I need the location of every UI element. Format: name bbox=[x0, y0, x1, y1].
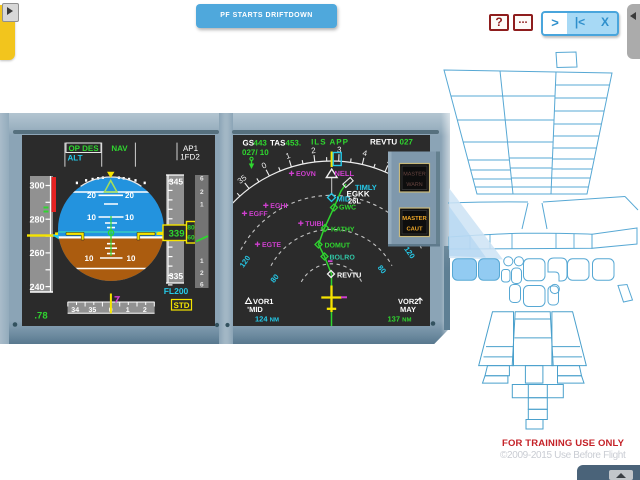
svg-text:2: 2 bbox=[143, 307, 147, 314]
svg-text:2: 2 bbox=[200, 189, 204, 196]
svg-text:260: 260 bbox=[29, 248, 44, 258]
svg-text:240: 240 bbox=[29, 282, 44, 292]
svg-text:KATHY: KATHY bbox=[331, 227, 355, 234]
svg-text:10: 10 bbox=[127, 254, 136, 263]
svg-text:80: 80 bbox=[376, 263, 388, 275]
svg-text:1: 1 bbox=[285, 151, 292, 161]
svg-text:2: 2 bbox=[200, 270, 204, 277]
svg-text:FL200: FL200 bbox=[164, 286, 189, 296]
svg-text:MAY: MAY bbox=[400, 305, 416, 314]
svg-text:34: 34 bbox=[71, 307, 79, 314]
svg-text:280: 280 bbox=[29, 214, 44, 224]
svg-text:26L: 26L bbox=[348, 197, 361, 206]
svg-text:60: 60 bbox=[187, 235, 195, 242]
svg-text:335: 335 bbox=[169, 271, 183, 281]
svg-text:BOLRO: BOLRO bbox=[330, 255, 356, 262]
svg-text:TIMLY: TIMLY bbox=[355, 183, 377, 192]
svg-text:35: 35 bbox=[236, 173, 249, 186]
svg-text:1: 1 bbox=[126, 307, 130, 314]
svg-text:027/ 10: 027/ 10 bbox=[242, 148, 269, 157]
svg-text:OP DES: OP DES bbox=[68, 144, 99, 153]
svg-text:EOVN: EOVN bbox=[296, 171, 316, 178]
svg-text:STD: STD bbox=[174, 301, 190, 310]
svg-text:ALT: ALT bbox=[68, 154, 83, 163]
svg-text:CAUT: CAUT bbox=[406, 226, 423, 233]
svg-text:WARN: WARN bbox=[406, 182, 422, 188]
svg-text:1: 1 bbox=[200, 258, 204, 265]
svg-text:MASTER: MASTER bbox=[403, 172, 426, 178]
svg-text:34: 34 bbox=[217, 190, 230, 203]
svg-text:10: 10 bbox=[87, 213, 96, 222]
svg-text:GWC: GWC bbox=[339, 205, 356, 212]
svg-text:124 NM: 124 NM bbox=[255, 315, 279, 324]
svg-text:EGHI: EGHI bbox=[270, 203, 287, 210]
svg-text:453.: 453. bbox=[286, 139, 302, 148]
svg-text:4: 4 bbox=[362, 148, 369, 158]
svg-text:6: 6 bbox=[200, 282, 204, 289]
svg-text:80: 80 bbox=[187, 225, 195, 232]
svg-text:ILS APP: ILS APP bbox=[311, 138, 349, 147]
svg-text:1FD2: 1FD2 bbox=[180, 152, 200, 161]
svg-text:TUIBI: TUIBI bbox=[305, 221, 323, 228]
svg-text:339: 339 bbox=[169, 229, 185, 240]
svg-text:’MID: ’MID bbox=[247, 305, 263, 314]
svg-text:120: 120 bbox=[238, 254, 253, 269]
svg-text:443: 443 bbox=[254, 139, 268, 148]
svg-text:NAV: NAV bbox=[111, 144, 128, 153]
svg-text:137 NM: 137 NM bbox=[388, 315, 412, 324]
svg-text:10: 10 bbox=[85, 254, 94, 263]
svg-text:TAS: TAS bbox=[270, 139, 286, 148]
svg-text:EGFF: EGFF bbox=[249, 211, 268, 218]
svg-text:6: 6 bbox=[200, 176, 204, 183]
svg-text:20: 20 bbox=[87, 191, 96, 200]
svg-text:REVTU: REVTU bbox=[370, 138, 397, 147]
svg-text:027: 027 bbox=[400, 138, 414, 147]
svg-text:REVTU: REVTU bbox=[337, 271, 361, 280]
svg-text:35: 35 bbox=[89, 307, 97, 314]
svg-text:2: 2 bbox=[311, 146, 317, 156]
svg-text:20: 20 bbox=[125, 191, 134, 200]
svg-text:DOMUT: DOMUT bbox=[325, 243, 351, 250]
svg-text:1: 1 bbox=[200, 202, 204, 209]
svg-text:10: 10 bbox=[125, 213, 134, 222]
svg-text:345: 345 bbox=[169, 177, 183, 187]
svg-text:EGTE: EGTE bbox=[262, 242, 281, 249]
svg-text:.78: .78 bbox=[34, 311, 47, 322]
svg-text:NELL: NELL bbox=[335, 169, 355, 178]
svg-text:80: 80 bbox=[268, 272, 280, 284]
svg-text:0: 0 bbox=[260, 160, 269, 170]
svg-text:120: 120 bbox=[402, 245, 417, 260]
svg-text:MASTER: MASTER bbox=[402, 215, 427, 222]
svg-text:300: 300 bbox=[29, 181, 44, 191]
